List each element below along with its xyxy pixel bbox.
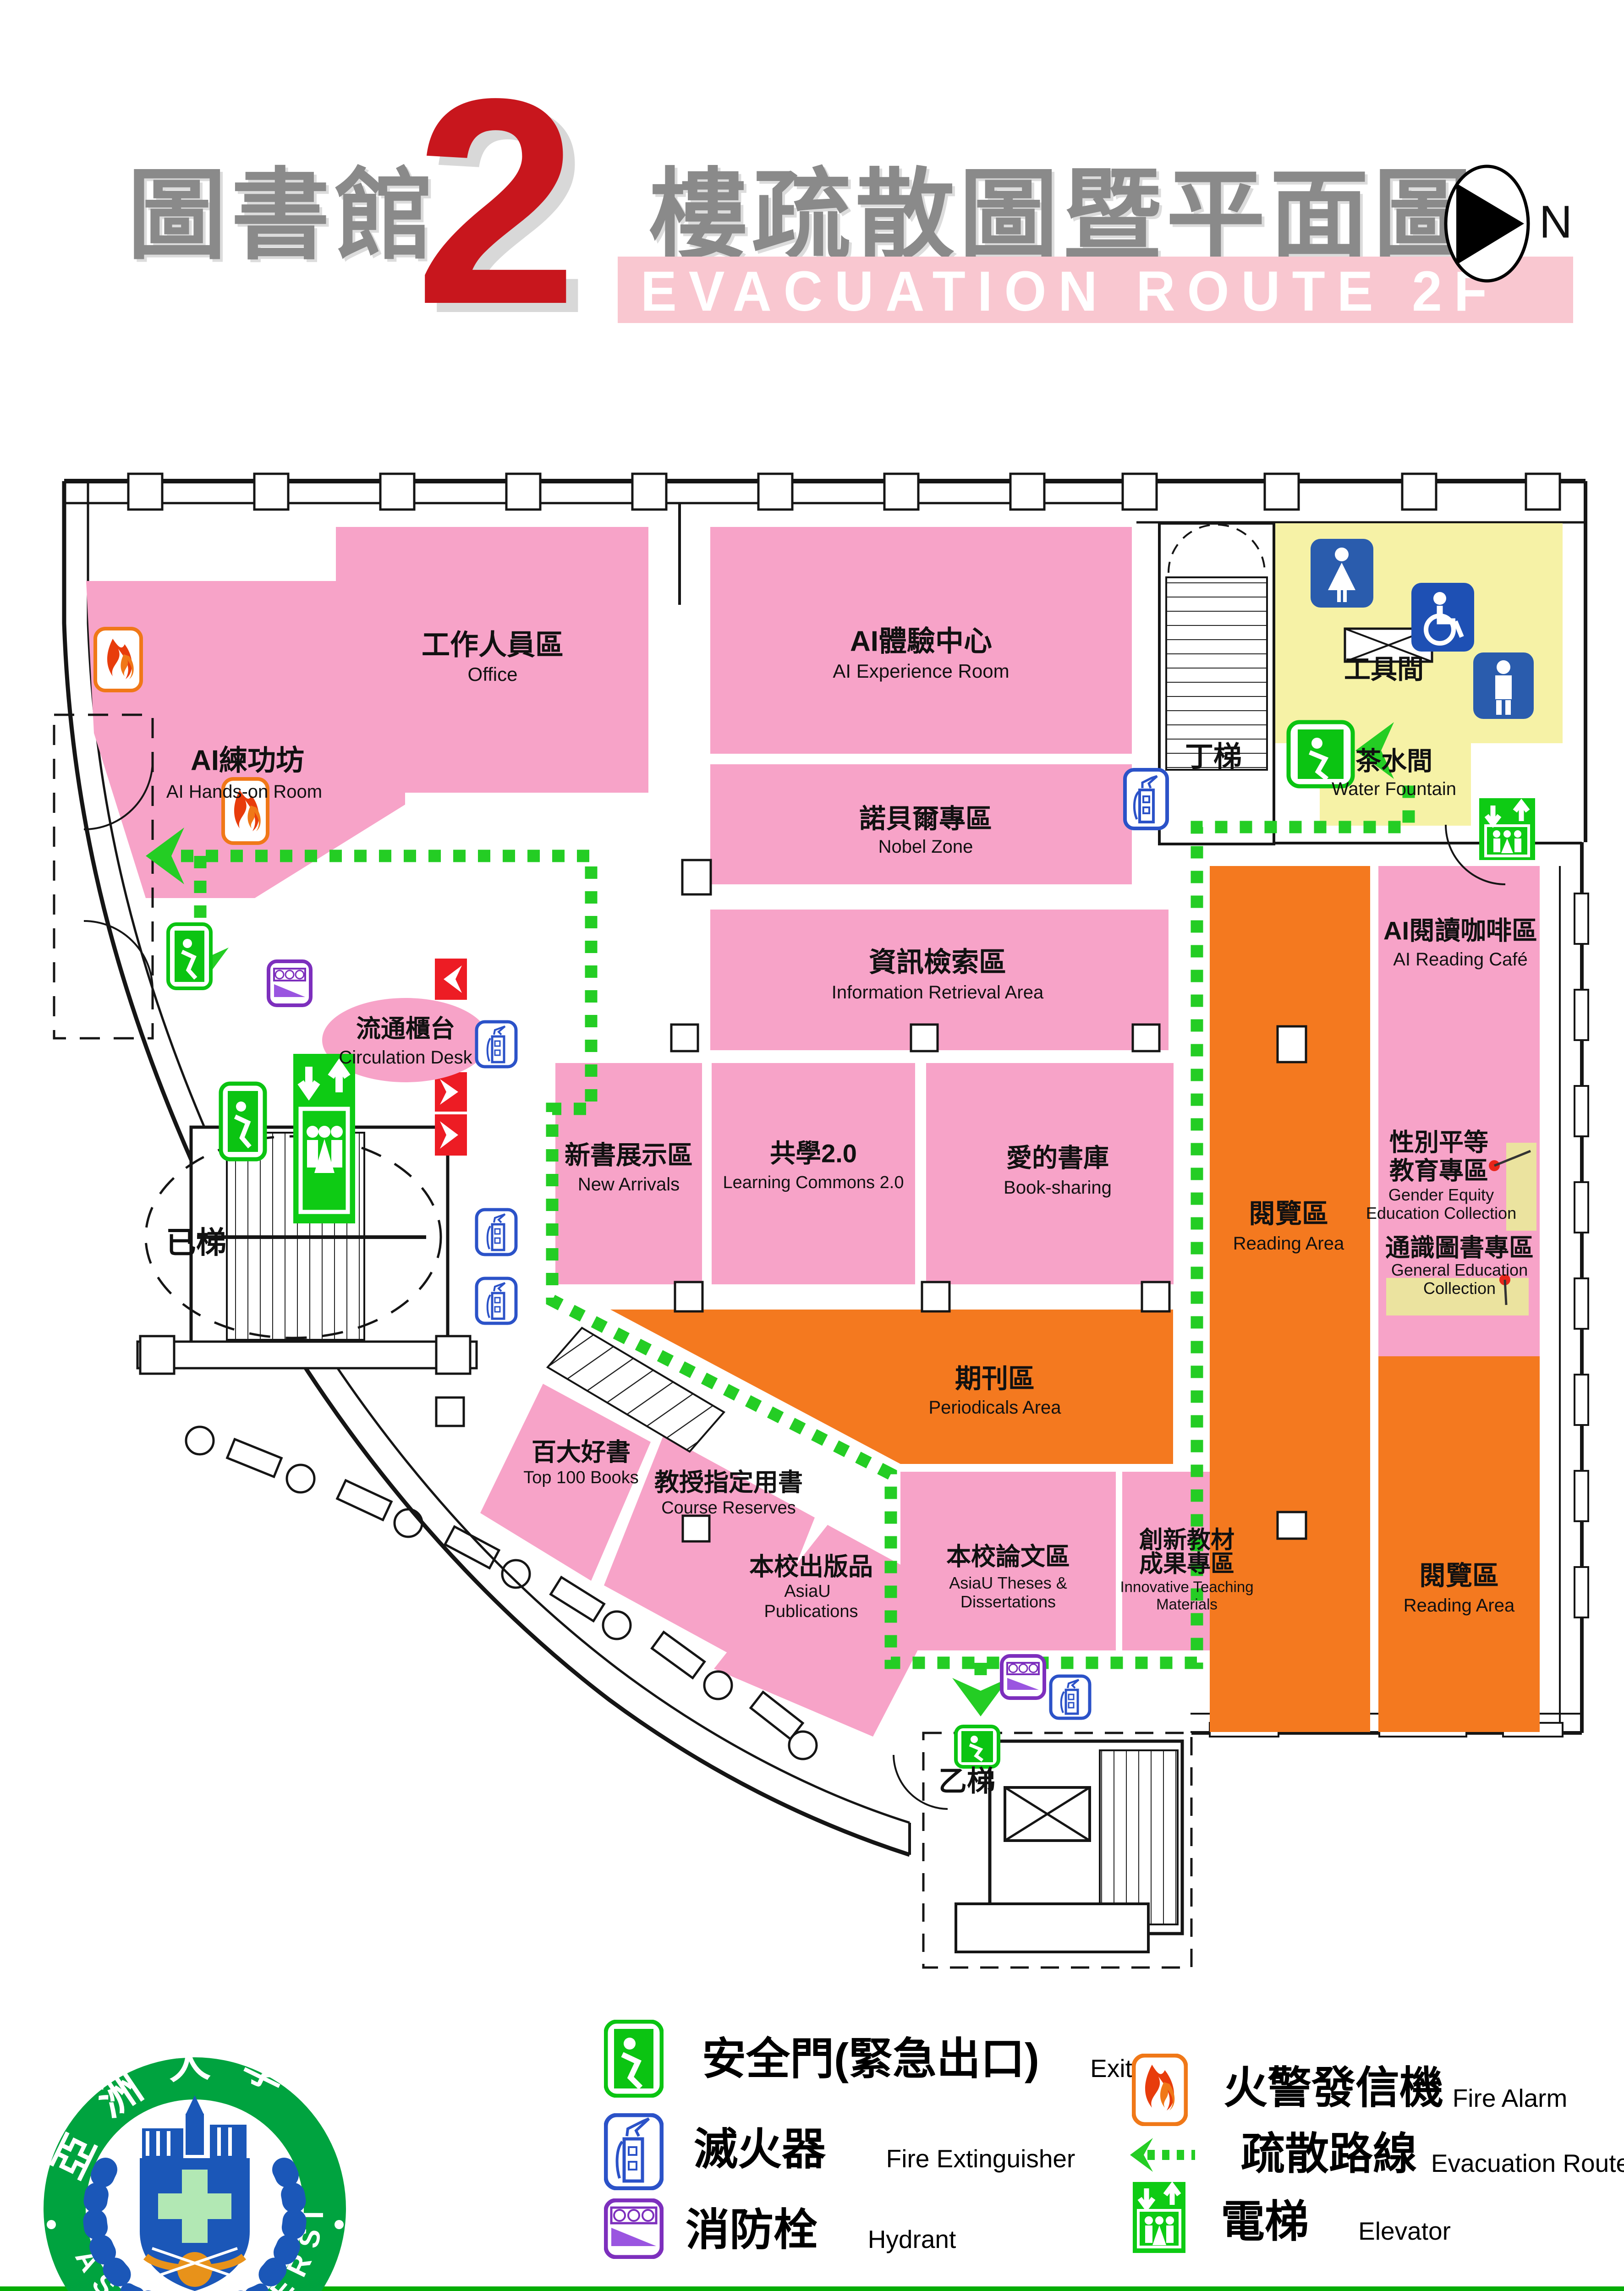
legend-elevator-label-zh: 電梯 [1221, 2199, 1309, 2246]
elevator-icon [1479, 798, 1535, 860]
area-book-sharing-label-zh: 愛的書庫 [1006, 1145, 1109, 1172]
area-innovative-label-en2: Materials [1156, 1597, 1218, 1613]
area-asiau-pubs-label-zh: 本校出版品 [749, 1554, 873, 1580]
legend-hydrant-label-en: Hydrant [868, 2226, 956, 2253]
fire-extinguisher-icon [477, 1210, 516, 1255]
area-innovative-label-zh2: 成果專區 [1139, 1552, 1234, 1577]
legend-extinguisher-label-en: Fire Extinguisher [886, 2146, 1075, 2172]
area-new-arrivals-label-zh: 新書展示區 [565, 1142, 693, 1169]
area-gen-ed-label-zh: 通識圖書專區 [1385, 1235, 1534, 1261]
stair-yi-label: 已梯 [166, 1227, 226, 1258]
area-reading-right-label-en: Reading Area [1404, 1596, 1514, 1615]
area-asiau-pubs-label-en2: Publications [764, 1603, 858, 1621]
area-ai-hands-on-label-en: AI Hands-on Room [166, 782, 322, 801]
legend-hydrant-icon [604, 2198, 664, 2259]
area-ai-hands-on-label-zh: AI練功坊 [191, 745, 304, 775]
exit-icon [956, 1726, 999, 1767]
legend-route-icon [1126, 2134, 1195, 2176]
area-gender-equity-label-zh1: 性別平等 [1389, 1130, 1488, 1156]
area-reading-right-label-zh: 閱覽區 [1419, 1562, 1499, 1590]
area-theses-label-zh: 本校論文區 [946, 1544, 1070, 1570]
stairwell-d [1159, 523, 1274, 844]
area-gender-equity-label-en1: Gender Equity [1388, 1186, 1494, 1204]
legend-extinguisher-icon [604, 2113, 664, 2190]
legend-fire-alarm-label-en: Fire Alarm [1453, 2085, 1568, 2112]
fire-extinguisher-icon [1051, 1676, 1090, 1718]
hydrant-icon [1002, 1656, 1044, 1698]
toilet-male-icon [1473, 652, 1534, 719]
area-ai-cafe-label-zh: AI閱讀咖啡區 [1383, 918, 1537, 945]
legend-route-label-zh: 疏散路線 [1241, 2132, 1417, 2178]
area-top100-label-zh: 百大好書 [532, 1440, 631, 1466]
fire-extinguisher-icon [477, 1278, 516, 1323]
water-fountain-label-en: Water Fountain [1332, 779, 1456, 799]
legend-route-label-en: Evacuation Route [1431, 2150, 1624, 2177]
area-info-retrieval-label-en: Information Retrieval Area [832, 983, 1043, 1002]
area-nobel-label-en: Nobel Zone [878, 837, 973, 856]
stair-d-label: 丁梯 [1185, 742, 1242, 772]
area-ai-cafe-label-en: AI Reading Café [1393, 950, 1528, 969]
exit-icon [221, 1084, 265, 1159]
legend-fire-alarm-icon [1132, 2054, 1188, 2126]
area-course-reserves-label-zh: 教授指定用書 [654, 1470, 803, 1496]
area-learning-commons-label-en: Learning Commons 2.0 [723, 1174, 904, 1192]
legend-fire-alarm-label-zh: 火警發信機 [1223, 2066, 1443, 2112]
legend-elevator-icon [1133, 2182, 1185, 2253]
fire-alarm-icon [95, 629, 141, 691]
fire-extinguisher-icon [477, 1022, 516, 1067]
area-theses-label-en2: Dissertations [960, 1593, 1056, 1611]
circulation-desk-label-zh: 流通櫃台 [356, 1016, 455, 1042]
exit-icon [168, 924, 211, 988]
area-theses-label-en1: AsiaU Theses & [949, 1574, 1067, 1592]
area-gender-equity-label-zh2: 教育專區 [1389, 1158, 1488, 1184]
area-office-label-zh: 工作人員區 [422, 630, 564, 660]
area-info-retrieval-label-zh: 資訊檢索區 [869, 948, 1006, 977]
area-nobel-label-zh: 諾貝爾專區 [859, 806, 992, 833]
area-office-label-en: Office [468, 664, 518, 685]
legend-hydrant-label-zh: 消防栓 [686, 2208, 817, 2254]
tool-room-label: 工具間 [1344, 656, 1424, 684]
area-periodicals-label-zh: 期刊區 [955, 1365, 1035, 1393]
area-book-sharing-label-en: Book-sharing [1004, 1178, 1112, 1197]
area-ai-experience-label-zh: AI體驗中心 [850, 626, 992, 656]
area-course-reserves-label-en: Course Reserves [661, 1499, 796, 1518]
area-asiau-pubs-label-en1: AsiaU [784, 1583, 830, 1601]
area-periodicals-label-en: Periodicals Area [928, 1398, 1061, 1417]
legend-exit-icon [604, 2020, 664, 2098]
evacuation-map-page: 圖書館 2 樓疏散圖暨平面圖 EVACUATION ROUTE 2F N [0, 0, 1624, 2291]
legend-extinguisher-label-zh: 滅火器 [694, 2127, 826, 2173]
area-gen-ed-label-en1: General Education [1391, 1261, 1528, 1279]
elevator-icon [293, 1054, 355, 1223]
area-reading-center-label-en: Reading Area [1233, 1234, 1344, 1253]
stair-b-label: 乙梯 [938, 1766, 995, 1796]
circulation-desk-label-en: Circulation Desk [339, 1048, 472, 1067]
area-ai-experience-label-en: AI Experience Room [833, 661, 1009, 681]
exit-icon [1289, 722, 1353, 786]
area-reading-center-label-zh: 閱覽區 [1249, 1200, 1328, 1228]
hydrant-icon [269, 961, 311, 1005]
legend-exit-label-zh: 安全門(緊急出口) [702, 2037, 1039, 2083]
fire-extinguisher-icon [1125, 770, 1167, 828]
university-logo: 亞洲大學 ASIA UNIVERSITY [27, 2041, 362, 2291]
area-new-arrivals-label-en: New Arrivals [578, 1175, 680, 1194]
area-gender-equity-label-en2: Education Collection [1366, 1205, 1516, 1222]
area-innovative-label-en1: Innovative Teaching [1120, 1579, 1253, 1595]
legend-elevator-label-en: Elevator [1358, 2218, 1451, 2245]
floor-plan [0, 0, 1624, 1984]
area-gen-ed-label-en2: Collection [1423, 1280, 1496, 1297]
area-top100-label-en: Top 100 Books [523, 1469, 638, 1487]
area-learning-commons-label-zh: 共學2.0 [770, 1140, 857, 1167]
legend-exit-label-en: Exit [1090, 2055, 1132, 2082]
area-innovative-label-zh1: 創新教材 [1139, 1528, 1234, 1553]
water-fountain-label-zh: 茶水間 [1355, 748, 1432, 775]
toilet-accessible-icon [1411, 583, 1474, 652]
toilet-female-icon [1311, 539, 1373, 608]
